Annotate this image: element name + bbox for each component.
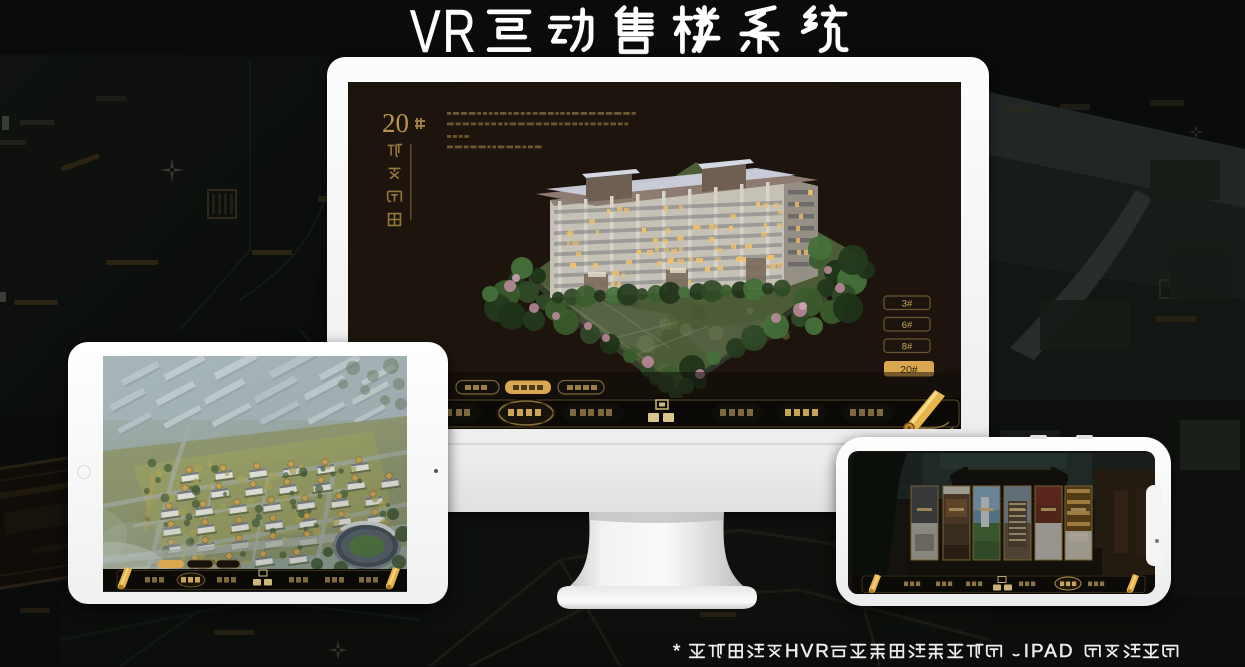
svg-text:VR: VR [410,0,478,60]
svg-text:8#: 8# [902,342,913,353]
svg-text:3#: 3# [902,299,913,310]
svg-text:20: 20 [382,108,409,138]
svg-text:*: * [673,641,682,662]
svg-text:6#: 6# [902,320,913,331]
svg-text:IPAD: IPAD [1024,641,1075,662]
svg-text:HVR: HVR [785,641,831,662]
